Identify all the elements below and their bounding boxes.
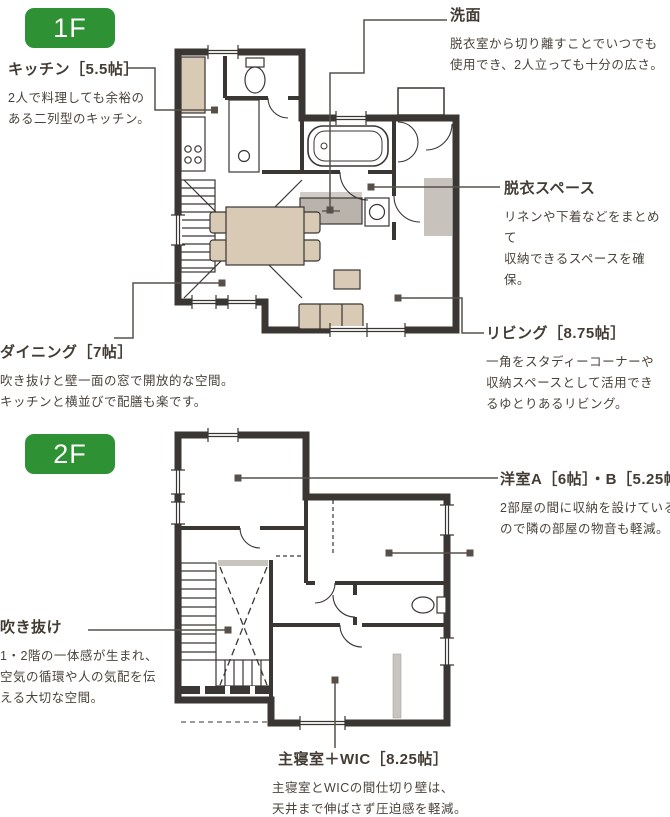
leader-dining — [114, 283, 222, 338]
floor2-windows — [171, 428, 454, 730]
callout-rooms-ab: 洋室A［6帖］・B［5.25帖］ 2部屋の間に収納を設けている ので隣の部屋の物… — [500, 468, 670, 540]
floor1-plan — [171, 45, 456, 337]
callout-living-title: リビング［8.75帖］ — [486, 322, 654, 343]
floor2-interior-walls — [178, 497, 447, 700]
callout-master-body: 主寝室とWICの間仕切り壁は、 天井まで伸ばさず圧迫感を軽減。 — [272, 778, 467, 817]
callout-void-title: 吹き抜け — [0, 616, 158, 637]
floor2-plan — [171, 428, 454, 730]
callout-dining-title: ダイニング［7帖］ — [0, 341, 234, 362]
callout-dining-body: 吹き抜けと壁一面の窓で開放的な空間。 キッチンと横並びで配膳も楽です。 — [0, 371, 234, 413]
balcony-wall — [181, 686, 271, 722]
callout-dressing-body: リネンや下着などをまとめて 収納できるスペースを確保。 — [504, 207, 670, 291]
bathtub — [308, 126, 388, 166]
callout-void-body: 1・2階の一体感が生まれ、 空気の循環や人の気配を伝 える大切な空間。 — [0, 646, 158, 709]
callout-dining: ダイニング［7帖］ 吹き抜けと壁一面の窓で開放的な空間。 キッチンと横並びで配膳… — [0, 341, 234, 413]
callout-void: 吹き抜け 1・2階の一体感が生まれ、 空気の循環や人の気配を伝 える大切な空間。 — [0, 616, 158, 709]
floor2-badge: 2F — [25, 434, 115, 474]
callout-washbasin-body: 脱衣室から切り離すことでいつでも 使用でき、2人立っても十分の広さ。 — [450, 34, 663, 76]
callout-kitchen: キッチン［5.5帖］ 2人で料理しても余裕の ある二列型のキッチン。 — [8, 58, 150, 130]
dining-set — [210, 207, 320, 265]
kitchen-pantry — [181, 57, 205, 113]
wic-partition — [393, 654, 401, 718]
kitchen-island — [229, 100, 259, 172]
callout-washbasin: 洗面 脱衣室から切り離すことでいつでも 使用でき、2人立っても十分の広さ。 — [450, 4, 663, 76]
washing-machine — [365, 198, 389, 226]
callout-dressing-title: 脱衣スペース — [504, 177, 670, 198]
callout-master-title: 主寝室＋WIC［8.25帖］ — [278, 748, 467, 769]
callout-rooms-ab-body: 2部屋の間に収納を設けている ので隣の部屋の物音も軽減。 — [500, 498, 670, 540]
callout-kitchen-body: 2人で料理しても余裕の ある二列型のキッチン。 — [8, 88, 150, 130]
callout-living-body: 一角をスタディーコーナーや 収納スペースとして活用でき るゆとりあるリビング。 — [486, 352, 654, 415]
floorplan-page: 1F 2F キッチン［5.5帖］ 2人で料理しても余裕の ある二列型のキッチン。… — [0, 0, 670, 817]
callout-living: リビング［8.75帖］ 一角をスタディーコーナーや 収納スペースとして活用でき … — [486, 322, 654, 415]
floor1-badge: 1F — [25, 8, 115, 48]
callout-master: 主寝室＋WIC［8.25帖］ 主寝室とWICの間仕切り壁は、 天井まで伸ばさず圧… — [278, 748, 467, 817]
callout-kitchen-title: キッチン［5.5帖］ — [8, 58, 150, 79]
callout-washbasin-title: 洗面 — [450, 4, 663, 25]
toilet-1f — [245, 58, 265, 93]
kitchen-cooktop-counter — [181, 117, 205, 171]
callout-dressing: 脱衣スペース リネンや下着などをまとめて 収納できるスペースを確保。 — [504, 177, 670, 291]
floor1-outer-walls — [178, 52, 456, 330]
void-open-edge — [218, 560, 268, 566]
callout-rooms-ab-title: 洋室A［6帖］・B［5.25帖］ — [500, 468, 670, 489]
side-table — [334, 270, 360, 289]
floor1-windows — [171, 45, 405, 337]
toilet-2f — [412, 597, 446, 613]
sofa — [299, 304, 363, 329]
porch — [398, 88, 444, 115]
